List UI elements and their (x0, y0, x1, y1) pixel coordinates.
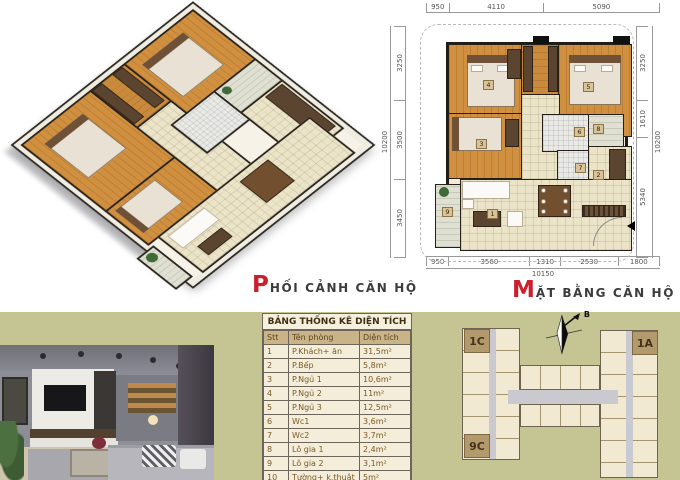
sofa (462, 181, 510, 199)
cell-area: 3,1m² (360, 457, 411, 471)
cell-room: Tường+ k.thuật (289, 471, 360, 480)
closet (548, 46, 558, 92)
plate (541, 188, 546, 193)
cell-area: 10,6m² (360, 373, 411, 387)
table-row: 1P.Khách+ ăn31,5m² (264, 345, 411, 359)
cell-area: 3,7m² (360, 429, 411, 443)
plant (0, 421, 24, 480)
dim-label: 3250 (396, 54, 404, 72)
connector-corridor (508, 390, 618, 404)
dim-segment: 950 (426, 3, 449, 13)
media-console-top (30, 429, 118, 438)
cell-area: 2,4m² (360, 443, 411, 457)
table-row: 9Lô gia 23,1m² (264, 457, 411, 471)
dim-label: 10200 (381, 131, 389, 153)
table-row: 6Wc13,6m² (264, 415, 411, 429)
room-badge-wc2: 7 (575, 163, 586, 173)
table-row: 5P.Ngủ 312,5m² (264, 401, 411, 415)
room-badge-loggia1: 8 (593, 124, 604, 134)
lamp (148, 415, 158, 425)
dim-segment: 3500 (394, 100, 406, 179)
dim-label: 3500 (396, 131, 404, 149)
compass-north-label: B (584, 310, 590, 319)
wardrobe-dark (178, 345, 214, 449)
coffee-table (507, 211, 523, 227)
table-row: 3P.Ngủ 110,6m² (264, 373, 411, 387)
dim-label: 10200 (654, 131, 662, 153)
pillow (574, 65, 586, 72)
room-badge-bedroom2: 4 (483, 80, 494, 90)
room-badge-kitchen: 2 (593, 170, 604, 180)
flowers (92, 437, 106, 449)
caption-initial: M (512, 277, 535, 303)
cell-stt: 10 (264, 471, 289, 480)
caption-floorplan: MẶT BẰNG CĂN HỘ (512, 277, 675, 303)
room-badge-bedroom1: 3 (476, 139, 487, 149)
dimension-col-right: 3250 1610 5340 (636, 26, 648, 258)
caption-text: ẶT BẰNG CĂN HỘ (536, 286, 675, 300)
cell-room: Lô gia 1 (289, 443, 360, 457)
striped-pillow (142, 445, 176, 467)
headboard (452, 117, 459, 151)
isometric-floorplan (13, 3, 372, 286)
pillow (471, 65, 483, 72)
cell-area: 3,6m² (360, 415, 411, 429)
cell-area: 5,8m² (360, 359, 411, 373)
floorplan-drawing: 1 2 3 4 5 6 7 8 9 (446, 42, 628, 248)
table-row: 10Tường+ k.thuật5m² (264, 471, 411, 480)
picture-frame (2, 377, 28, 425)
room-badge-living: 1 (487, 209, 498, 219)
unit-tag-9C: 9C (464, 434, 490, 458)
cell-stt: 2 (264, 359, 289, 373)
connector-units-bottom (520, 404, 600, 427)
area-table-title: BẢNG THỐNG KÊ DIỆN TÍCH (263, 314, 411, 330)
table-header-row: Stt Tên phòng Diện tích (264, 331, 411, 345)
dimension-row-top: 950 4110 5090 (426, 3, 660, 13)
header-area: Diện tích (360, 331, 411, 345)
cell-stt: 1 (264, 345, 289, 359)
wardrobe (505, 119, 519, 147)
connector-units-top (520, 365, 600, 390)
dimension-total-right: 10200 (652, 26, 663, 258)
dim-segment: 5340 (636, 137, 648, 258)
dim-segment: 1610 (636, 100, 648, 137)
lit-shelves (128, 383, 176, 413)
closet (523, 46, 533, 92)
dim-label: 5090 (592, 3, 610, 11)
cell-room: P.Ngủ 3 (289, 401, 360, 415)
table-row: 8Lô gia 12,4m² (264, 443, 411, 457)
tv (44, 385, 86, 411)
plate (563, 188, 568, 193)
cell-area: 11m² (360, 387, 411, 401)
building-site-plan: 1C 9C 1A B (412, 312, 680, 480)
plate (541, 199, 546, 204)
kitchen-island (582, 205, 626, 217)
room-badge-loggia2: 9 (442, 207, 453, 217)
cell-room: P.Ngủ 1 (289, 373, 360, 387)
header-room: Tên phòng (289, 331, 360, 345)
table-row: 7Wc23,7m² (264, 429, 411, 443)
spotlight (78, 351, 84, 357)
cell-room: Wc2 (289, 429, 360, 443)
cell-stt: 7 (264, 429, 289, 443)
interior-photo (0, 345, 214, 480)
wardrobe (507, 49, 521, 79)
cell-room: P.Khách+ ăn (289, 345, 360, 359)
caption-perspective: PHỐI CẢNH CĂN HỘ (252, 272, 418, 298)
dim-label: 3250 (639, 54, 647, 72)
cell-area: 31,5m² (360, 345, 411, 359)
compass: B (540, 310, 592, 356)
dim-label: 5340 (639, 188, 647, 206)
area-table: BẢNG THỐNG KÊ DIỆN TÍCH Stt Tên phòng Di… (262, 313, 412, 480)
dim-segment: 3250 (394, 26, 406, 100)
pillow (180, 449, 206, 469)
caption-text: HỐI CẢNH CĂN HỘ (270, 281, 418, 295)
dim-label: 3450 (396, 210, 404, 228)
dim-label: 4110 (487, 3, 505, 11)
cell-area: 5m² (360, 471, 411, 480)
cell-stt: 3 (264, 373, 289, 387)
room-badge-bedroom3: 5 (583, 82, 594, 92)
dim-label: 1800 (630, 258, 648, 266)
pillow (601, 65, 613, 72)
header-stt: Stt (264, 331, 289, 345)
wall-notch (533, 36, 549, 44)
cell-room: Wc1 (289, 415, 360, 429)
caption-initial: P (252, 272, 269, 298)
plate (541, 209, 546, 214)
cell-room: P.Ngủ 2 (289, 387, 360, 401)
spotlight (116, 353, 122, 359)
cell-area: 12,5m² (360, 401, 411, 415)
cell-stt: 5 (264, 401, 289, 415)
plate (563, 209, 568, 214)
cell-stt: 6 (264, 415, 289, 429)
sofa-chaise (462, 199, 474, 209)
cell-stt: 8 (264, 443, 289, 457)
dim-segment: 5090 (543, 3, 660, 13)
unit-tag-1A: 1A (632, 331, 658, 355)
cell-stt: 4 (264, 387, 289, 401)
spotlight (40, 353, 46, 359)
cell-room: P.Bếp (289, 359, 360, 373)
cell-stt: 9 (264, 457, 289, 471)
unit-tag-1C: 1C (464, 329, 490, 353)
entrance-arrow-icon (627, 221, 635, 231)
table-row: 2P.Bếp5,8m² (264, 359, 411, 373)
dim-label: 1610 (639, 110, 647, 128)
spotlight (150, 357, 156, 363)
wall-notch (613, 36, 630, 44)
dimension-col-left: 3250 3500 3450 (394, 26, 406, 258)
plate (563, 199, 568, 204)
cell-room: Lô gia 2 (289, 457, 360, 471)
room-badge-wc1: 6 (574, 127, 585, 137)
headboard (569, 55, 621, 63)
dim-segment: 3250 (636, 26, 648, 100)
left-wing-corridor (489, 329, 496, 459)
dim-segment: 4110 (449, 3, 543, 13)
dim-label: 950 (431, 3, 444, 11)
apartment-2d-plan: 950 4110 5090 10200 3250 3500 3450 3250 … (372, 0, 680, 280)
dim-segment: 3450 (394, 179, 406, 258)
dimension-total-left: 10200 (380, 26, 391, 258)
table-row: 4P.Ngủ 211m² (264, 387, 411, 401)
shelf-column (94, 371, 116, 437)
area-table-grid: Stt Tên phòng Diện tích 1P.Khách+ ăn31,5… (263, 330, 411, 480)
brochure-page: 950 4110 5090 10200 3250 3500 3450 3250 … (0, 0, 680, 480)
apartment-3d-view (14, 2, 360, 278)
plant (439, 187, 449, 197)
